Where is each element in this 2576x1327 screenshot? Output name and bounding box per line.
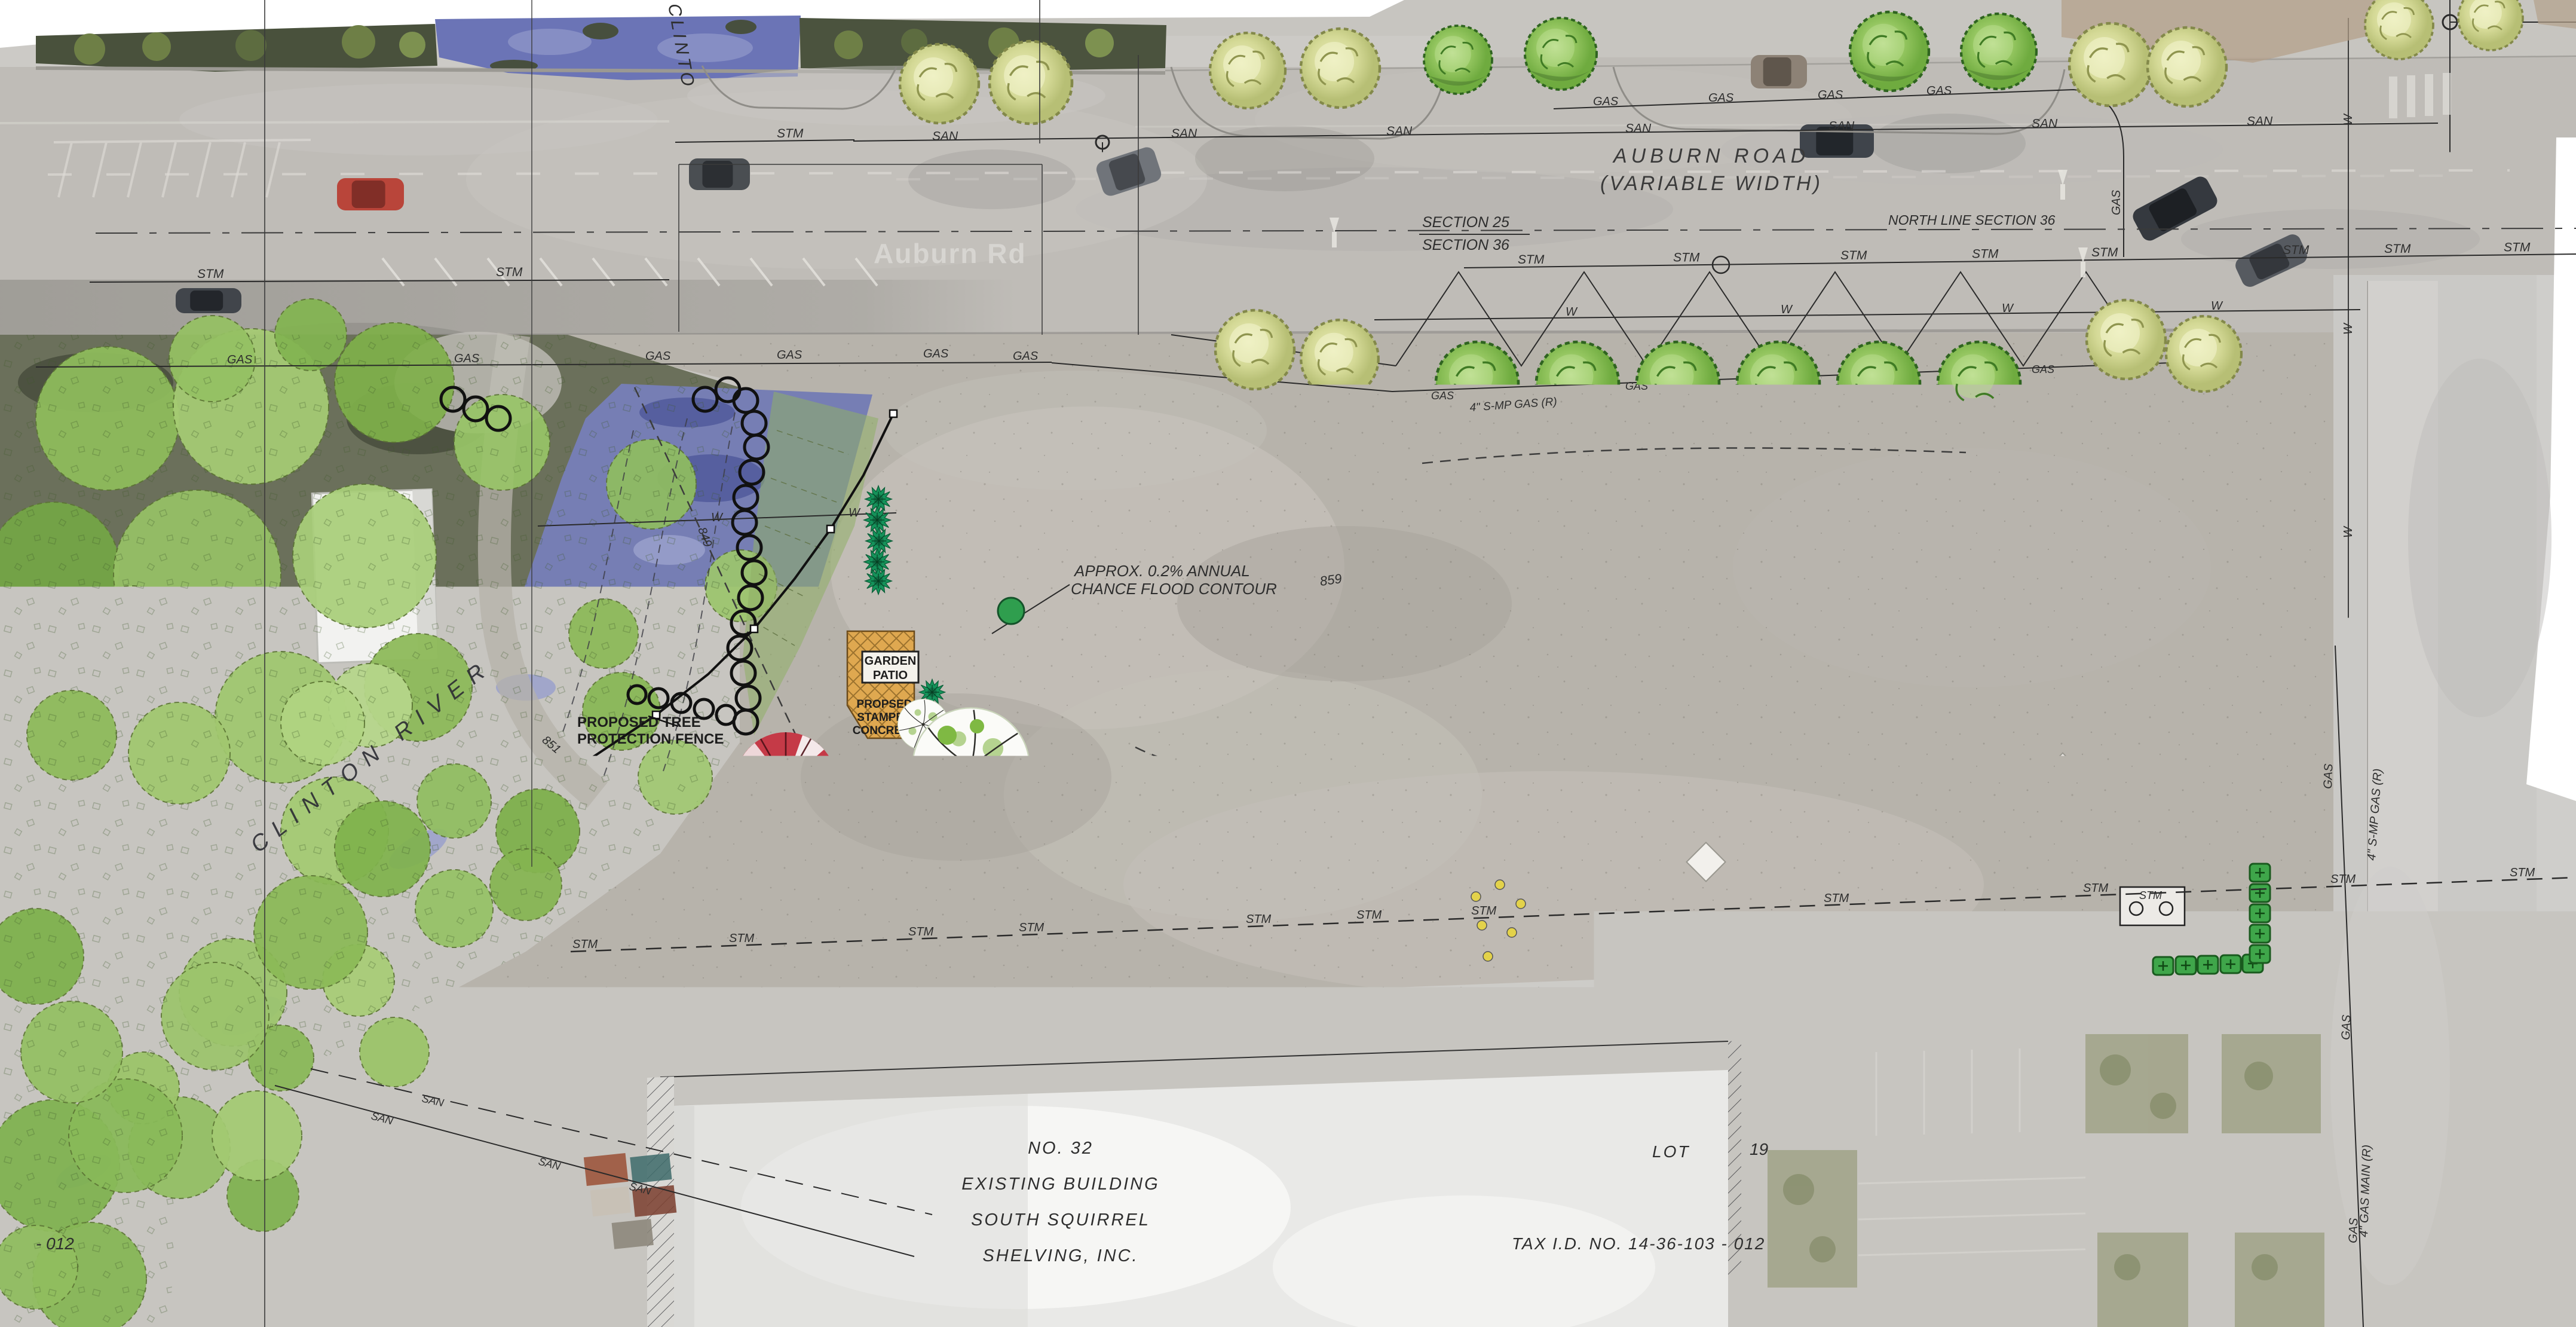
svg-text:863: 863	[2073, 482, 2096, 497]
svg-text:ONLY: ONLY	[2423, 736, 2443, 785]
svg-text:SHELVING, INC.: SHELVING, INC.	[982, 1246, 1138, 1265]
svg-text:STM: STM	[908, 925, 934, 938]
svg-text:- 012: - 012	[36, 1234, 74, 1253]
svg-text:SAN: SAN	[2247, 115, 2273, 129]
svg-text:TAX I.D. NO. 14-36-103-002: TAX I.D. NO. 14-36-103-002	[1249, 668, 1506, 686]
svg-text:SAN: SAN	[2436, 685, 2449, 711]
svg-text:NO. 32: NO. 32	[1028, 1139, 1094, 1158]
svg-text:FLOOD: FLOOD	[641, 788, 678, 800]
svg-text:W: W	[1781, 303, 1793, 316]
svg-text:S Squirrel Rd: S Squirrel Rd	[2479, 1051, 2514, 1279]
svg-text:BIRDHOUSES: BIRDHOUSES	[1756, 923, 1843, 938]
svg-text:STM: STM	[2091, 246, 2118, 259]
svg-text:PROPOSED TREE: PROPOSED TREE	[268, 949, 391, 965]
svg-text:CHANCE FLOOD CONTOUR: CHANCE FLOOD CONTOUR	[1071, 580, 1277, 598]
svg-text:STM: STM	[1356, 909, 1382, 922]
svg-text:C.B.: C.B.	[854, 304, 880, 319]
svg-text:STM: STM	[1471, 904, 1497, 918]
svg-text:SAN: SAN	[2436, 972, 2449, 998]
svg-text:SAN: SAN	[1828, 120, 1855, 133]
svg-text:SOUTH SQUIRREL: SOUTH SQUIRREL	[971, 1210, 1150, 1230]
svg-text:SAN: SAN	[1171, 127, 1197, 140]
svg-text:GAS: GAS	[2110, 189, 2123, 215]
svg-text:GAS: GAS	[1708, 91, 1734, 105]
svg-text:"SUPERVISOR'S PLAT NO. 9": "SUPERVISOR'S PLAT NO. 9"	[1324, 522, 1583, 540]
svg-text:(VARIABLE WIDTH): (VARIABLE WIDTH)	[1600, 172, 1823, 195]
svg-text:862: 862	[1745, 638, 1762, 661]
svg-text:PROTECTION FENCE: PROTECTION FENCE	[577, 731, 724, 747]
svg-text:PATIO: PATIO	[873, 669, 908, 682]
svg-text:SAN: SAN	[2436, 446, 2449, 472]
svg-text:SAN: SAN	[932, 130, 958, 143]
svg-text:W: W	[849, 506, 861, 519]
svg-text:PROTECTION FENCE: PROTECTION FENCE	[268, 965, 414, 982]
svg-text:SAN: SAN	[2436, 793, 2449, 819]
svg-text:SECTION 36: SECTION 36	[1422, 237, 1509, 253]
svg-text:Auburn Rd: Auburn Rd	[874, 238, 1027, 269]
svg-text:EXISTING BUILDING: EXISTING BUILDING	[961, 1175, 1159, 1194]
svg-text:STM: STM	[2139, 889, 2162, 901]
svg-text:SAN: SAN	[2032, 117, 2058, 131]
svg-text:GAS: GAS	[1926, 84, 1952, 97]
svg-text:APPROX. 0.2% ANNUAL: APPROX. 0.2% ANNUAL	[1073, 562, 1250, 580]
svg-text:LOT: LOT	[1652, 1142, 1690, 1161]
svg-text:STM: STM	[729, 932, 755, 945]
svg-text:859: 859	[1319, 571, 1343, 589]
svg-text:STM: STM	[572, 938, 598, 951]
svg-text:LOT 18: LOT 18	[1972, 730, 2053, 750]
svg-text:(LIBER 52, PAGE 34 O.C.R.): (LIBER 52, PAGE 34 O.C.R.)	[1796, 502, 2059, 521]
svg-text:STM: STM	[1673, 251, 1700, 265]
svg-text:STM: STM	[1824, 892, 1849, 905]
svg-text:W: W	[2002, 302, 2014, 315]
svg-text:STM: STM	[496, 265, 523, 279]
svg-text:STM: STM	[1972, 247, 1999, 261]
svg-text:STM: STM	[1840, 249, 1867, 262]
svg-text:TAX I.D. NO. 14-36-103-003: TAX I.D. NO. 14-36-103-003	[1797, 602, 2055, 620]
svg-text:STM: STM	[1518, 253, 1545, 267]
svg-text:860: 860	[1413, 789, 1431, 814]
svg-text:2" GAS MAIN (R): 2" GAS MAIN (R)	[2418, 938, 2516, 952]
svg-text:SAN: SAN	[1625, 121, 1652, 135]
svg-text:W: W	[711, 511, 724, 524]
svg-text:STM: STM	[2083, 882, 2109, 895]
svg-text:TAX I.D. NO. 14-36-103 -: TAX I.D. NO. 14-36-103 - 012	[1512, 1234, 1765, 1253]
svg-text:AUBURN ROAD: AUBURN ROAD	[1612, 145, 1809, 167]
svg-text:STM: STM	[2510, 866, 2535, 879]
svg-text:W: W	[2211, 299, 2223, 313]
svg-text:STM: STM	[2384, 242, 2411, 256]
svg-text:860: 860	[1429, 781, 1446, 805]
svg-text:STM: STM	[2283, 243, 2309, 257]
svg-text:STM: STM	[1019, 921, 1045, 934]
svg-text:W: W	[1566, 305, 1578, 319]
svg-text:STM: STM	[1246, 913, 1272, 926]
svg-text:SAN: SAN	[2436, 571, 2449, 598]
svg-text:SAN: SAN	[1088, 225, 1101, 251]
svg-text:GAS: GAS	[2339, 1014, 2353, 1041]
svg-text:SAN: SAN	[2436, 1259, 2449, 1285]
svg-text:GAS: GAS	[2387, 935, 2413, 949]
svg-text:STM: STM	[777, 127, 804, 140]
svg-text:APPROX. 1% ANNUAL: APPROX. 1% ANNUAL	[834, 886, 998, 904]
svg-text:STM: STM	[2504, 240, 2531, 254]
svg-text:STM: STM	[197, 267, 224, 281]
svg-text:SAN: SAN	[2498, 203, 2524, 217]
svg-text:GAUGING STATION: GAUGING STATION	[649, 471, 788, 486]
svg-text:19: 19	[1750, 1140, 1768, 1158]
svg-text:SAN: SAN	[2436, 285, 2449, 311]
svg-text:PROPOSED TREE: PROPOSED TREE	[577, 714, 701, 730]
svg-text:SAN: SAN	[1029, 153, 1043, 179]
svg-text:SECTION 25: SECTION 25	[1422, 214, 1509, 231]
svg-text:GAS: GAS	[1818, 88, 1843, 102]
svg-text:CHANCE FLOOD CONTOUR: CHANCE FLOOD CONTOUR	[832, 904, 1038, 922]
svg-text:GARDEN: GARDEN	[865, 655, 917, 668]
svg-text:(VARIABLE WIDTH): (VARIABLE WIDTH)	[2568, 335, 2576, 472]
svg-text:GAS: GAS	[1593, 95, 1619, 108]
svg-text:SAN: SAN	[1386, 124, 1413, 138]
svg-text:SAN: SAN	[2436, 1109, 2449, 1136]
svg-text:GAS: GAS	[2321, 763, 2335, 790]
svg-text:NORTH LINE SECTION 36: NORTH LINE SECTION 36	[1888, 212, 2056, 228]
svg-text:STM: STM	[2330, 873, 2356, 886]
